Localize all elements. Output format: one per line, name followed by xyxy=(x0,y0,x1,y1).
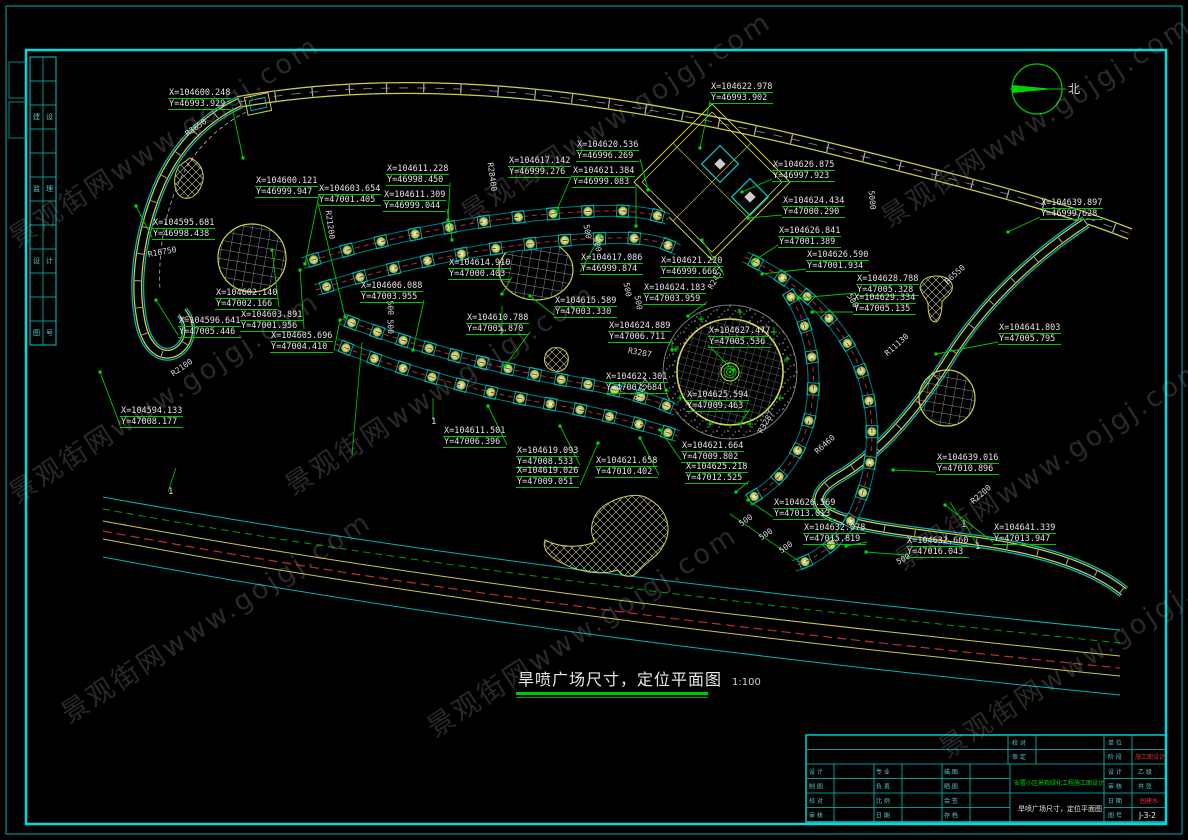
title-block-text: 审 定 xyxy=(1012,753,1026,761)
title-block-text: 比 例 xyxy=(876,797,890,805)
coordinate-label: X=104621.220Y=46999.666 xyxy=(660,256,723,278)
title-block-text: 专 业 xyxy=(876,768,890,776)
leader-line xyxy=(505,332,530,366)
title-block-text: 共 张 xyxy=(1138,783,1152,791)
title-block-text: J-3-2 xyxy=(1138,811,1156,820)
leader-point xyxy=(699,147,702,150)
coordinate-label: X=104641.339Y=47013.947 xyxy=(993,523,1056,545)
title-block-text: 园建水 xyxy=(1140,797,1158,805)
strip-cell-text: 理 xyxy=(46,185,53,193)
coordinate-label: X=104621.658Y=47010.402 xyxy=(595,456,658,478)
leader-point xyxy=(671,349,674,352)
coordinate-label: X=104632.078Y=47015.819 xyxy=(803,523,866,545)
leader-point xyxy=(487,405,490,408)
coordinate-label: X=104600.121Y=46999.947 xyxy=(255,176,318,198)
section-marker: 1 xyxy=(961,520,966,530)
title-block-text: 校 对 xyxy=(809,797,823,805)
section-marker: 1 xyxy=(431,417,436,427)
leader-line xyxy=(742,179,772,192)
coordinate-label: X=104639.016Y=47010.896 xyxy=(936,453,999,475)
leader-line xyxy=(748,215,782,218)
coordinate-label: X=104611.228Y=46998.450 xyxy=(386,164,449,186)
title-block-text: 制 图 xyxy=(809,783,823,791)
drawing-scale: 1:100 xyxy=(732,677,761,688)
title-block-text: 校 对 xyxy=(1012,739,1026,747)
strip-cell-text: 监 xyxy=(33,184,40,193)
coordinate-label: X=104603.891Y=47001.956 xyxy=(240,310,303,332)
coordinate-label: X=104625.218Y=47012.525 xyxy=(685,462,748,484)
coordinate-label: X=104625.594Y=47009.463 xyxy=(686,390,749,412)
leader-point xyxy=(271,249,274,252)
leader-point xyxy=(529,295,532,298)
leader-point xyxy=(559,425,562,428)
title-block-text: 存 档 xyxy=(944,812,958,820)
title-block-text: 施工图设计 xyxy=(1135,753,1165,761)
title-block-text: 图 号 xyxy=(1108,813,1122,820)
title-block-text: 会 签 xyxy=(944,797,958,805)
leader-point xyxy=(751,261,754,264)
title-block-text: 阶 段 xyxy=(1108,753,1122,761)
leader-point xyxy=(659,429,662,432)
north-label: 北 xyxy=(1068,82,1080,96)
leader-point xyxy=(339,319,342,322)
coordinate-label: X=104611.309Y=46999.044 xyxy=(383,190,446,212)
coordinate-label: X=104626.590Y=47001.934 xyxy=(806,250,869,272)
leader-point xyxy=(451,239,454,242)
coordinate-label: X=104617.086Y=46999.874 xyxy=(580,253,643,275)
coordinate-label: X=104610.788Y=47005.870 xyxy=(466,313,529,335)
title-block-text: 日 期 xyxy=(1108,797,1122,805)
title-block-text: 负 责 xyxy=(876,783,890,791)
coordinate-label: X=104627.477Y=47005.536 xyxy=(708,326,771,348)
coordinate-label: X=104600.248Y=46993.929 xyxy=(168,88,231,110)
leader-line xyxy=(232,107,243,158)
coordinate-label: X=104621.384Y=46999.083 xyxy=(572,166,635,188)
coordinate-label: X=104594.133Y=47008.177 xyxy=(120,406,183,428)
coordinate-label: X=104626.841Y=47001.389 xyxy=(778,226,841,248)
drawing-title: 旱喷广场尺寸，定位平面图1:100 xyxy=(518,666,761,690)
leader-line xyxy=(556,175,572,212)
cad-sheet: 北 建设监理设计图号校 对审 定单 位阶 段施工图设计设 计制 图校 对审 核专… xyxy=(0,0,1188,840)
title-block-text: 日 期 xyxy=(876,812,890,820)
leader-point xyxy=(739,423,742,426)
coordinate-label: X=104603.654Y=47001.405 xyxy=(318,184,381,206)
coordinate-label: X=104632.660Y=47016.043 xyxy=(906,536,969,558)
leader-point xyxy=(944,504,947,507)
title-underline xyxy=(516,692,708,695)
leader-point xyxy=(504,365,507,368)
coordinate-label: X=104615.589Y=47003.330 xyxy=(554,296,617,318)
coordinate-label: X=104624.183Y=47003.959 xyxy=(643,283,706,305)
north-compass: 北 xyxy=(1010,64,1080,114)
coordinate-label: X=104629.334Y=47005.135 xyxy=(853,293,916,315)
leader-line xyxy=(100,372,120,425)
north-arrow-icon xyxy=(1012,85,1054,93)
leader-line xyxy=(936,342,998,354)
strip-cell-text: 计 xyxy=(46,256,53,265)
coordinate-label: X=104621.664Y=47009.802 xyxy=(681,441,744,463)
leader-line xyxy=(748,500,773,517)
green-leader xyxy=(950,502,962,521)
strip-cell-text: 建 xyxy=(33,112,40,121)
leader-point xyxy=(747,499,750,502)
leader-point xyxy=(761,273,764,276)
leader-point xyxy=(555,211,558,214)
leader-point xyxy=(892,469,895,472)
title-block-text: 审 核 xyxy=(809,812,823,820)
leader-line xyxy=(1008,217,1040,232)
leader-point xyxy=(501,293,504,296)
title-block-text: 旱喷广场尺寸，定位平面图 xyxy=(1018,804,1102,813)
coordinate-label: X=104602.140Y=47002.166 xyxy=(215,288,278,310)
section-marker: 1 xyxy=(168,487,173,497)
coordinate-label: X=104606.088Y=47003.955 xyxy=(360,281,423,303)
leader-point xyxy=(639,437,642,440)
title-block-text: 安置小区景观绿化工程施工图设计 xyxy=(1014,779,1104,787)
strip-cell-text: 设 xyxy=(33,256,40,265)
title-block-text: 单 位 xyxy=(1108,739,1122,747)
strip-cell-text: 图 xyxy=(33,329,40,337)
section-marker: 1 xyxy=(975,542,980,552)
leader-point xyxy=(135,205,138,208)
coordinate-label: X=104641.803Y=47005.795 xyxy=(998,323,1061,345)
leader-point xyxy=(412,349,415,352)
leader-point xyxy=(735,491,738,494)
leader-point xyxy=(299,269,302,272)
road-top xyxy=(238,88,1130,234)
strip-cell-text: 设 xyxy=(46,112,53,121)
title-block-text: 审 核 xyxy=(1108,783,1122,791)
coordinate-label: X=104619.026Y=47009.051 xyxy=(516,466,579,488)
coordinate-label: X=104624.434Y=47000.290 xyxy=(782,196,845,218)
leader-point xyxy=(155,299,158,302)
coordinate-label: X=104619.093Y=47008.533 xyxy=(516,446,579,468)
leader-point xyxy=(99,371,102,374)
coordinate-label: X=104605.696Y=47004.410 xyxy=(270,331,333,353)
leader-point xyxy=(635,225,638,228)
title-underline-thin xyxy=(516,697,708,698)
leader-point xyxy=(935,353,938,356)
coordinate-label: X=104626.875Y=46997.923 xyxy=(772,160,835,182)
leader-point xyxy=(865,551,868,554)
leader-point xyxy=(1007,231,1010,234)
dimension-label: 5000 xyxy=(867,190,878,210)
leader-line xyxy=(156,300,178,335)
coordinate-label: X=104620.536Y=46996.269 xyxy=(576,140,639,162)
leader-point xyxy=(597,442,600,445)
leader-point xyxy=(741,191,744,194)
leader-point xyxy=(701,239,704,242)
title-block-text: 描 图 xyxy=(944,768,958,776)
coordinate-label: X=104622.301Y=47007.684 xyxy=(605,372,668,394)
title-block-text: 设 计 xyxy=(809,768,823,776)
leader-point xyxy=(687,315,690,318)
title-block: 校 对审 定单 位阶 段施工图设计设 计制 图校 对审 核专 业负 责比 例日 … xyxy=(806,735,1166,822)
coordinate-label: X=104617.142Y=46999.276 xyxy=(508,156,571,178)
leader-point xyxy=(242,157,245,160)
side-strip: 建设监理设计图号 xyxy=(30,57,56,345)
leader-point xyxy=(811,311,814,314)
leader-point xyxy=(304,263,307,266)
coordinate-label: X=104624.889Y=47006.711 xyxy=(608,321,671,343)
coordinate-label: X=104595.681Y=46998.438 xyxy=(152,218,215,240)
coordinate-label: X=104596.641Y=47005.446 xyxy=(178,316,241,338)
coordinate-label: X=104614.910Y=47000.403 xyxy=(448,258,511,280)
drawing-title-text: 旱喷广场尺寸，定位平面图 xyxy=(518,670,722,689)
coordinate-label: X=104622.978Y=46993.902 xyxy=(710,82,773,104)
leader-point xyxy=(732,369,735,372)
leader-point xyxy=(647,189,650,192)
title-block-text: 乙 级 xyxy=(1138,768,1152,776)
dimension-label: 500 xyxy=(386,319,395,334)
title-block-text: 设 计 xyxy=(1108,768,1122,776)
leader-line xyxy=(893,470,936,472)
green-leader xyxy=(352,342,362,455)
leader-point xyxy=(344,316,347,319)
leader-point xyxy=(797,297,800,300)
leader-line xyxy=(752,245,778,262)
title-block-text: 晒 图 xyxy=(944,784,958,791)
coordinate-label: X=104639.897Y=46999.628 xyxy=(1040,198,1103,220)
coordinate-label: X=104611.501Y=47006.396 xyxy=(443,426,506,448)
strip-cell-text: 号 xyxy=(46,329,53,337)
leader-point xyxy=(747,217,750,220)
coordinate-label: X=104626.569Y=47013.013 xyxy=(773,498,836,520)
